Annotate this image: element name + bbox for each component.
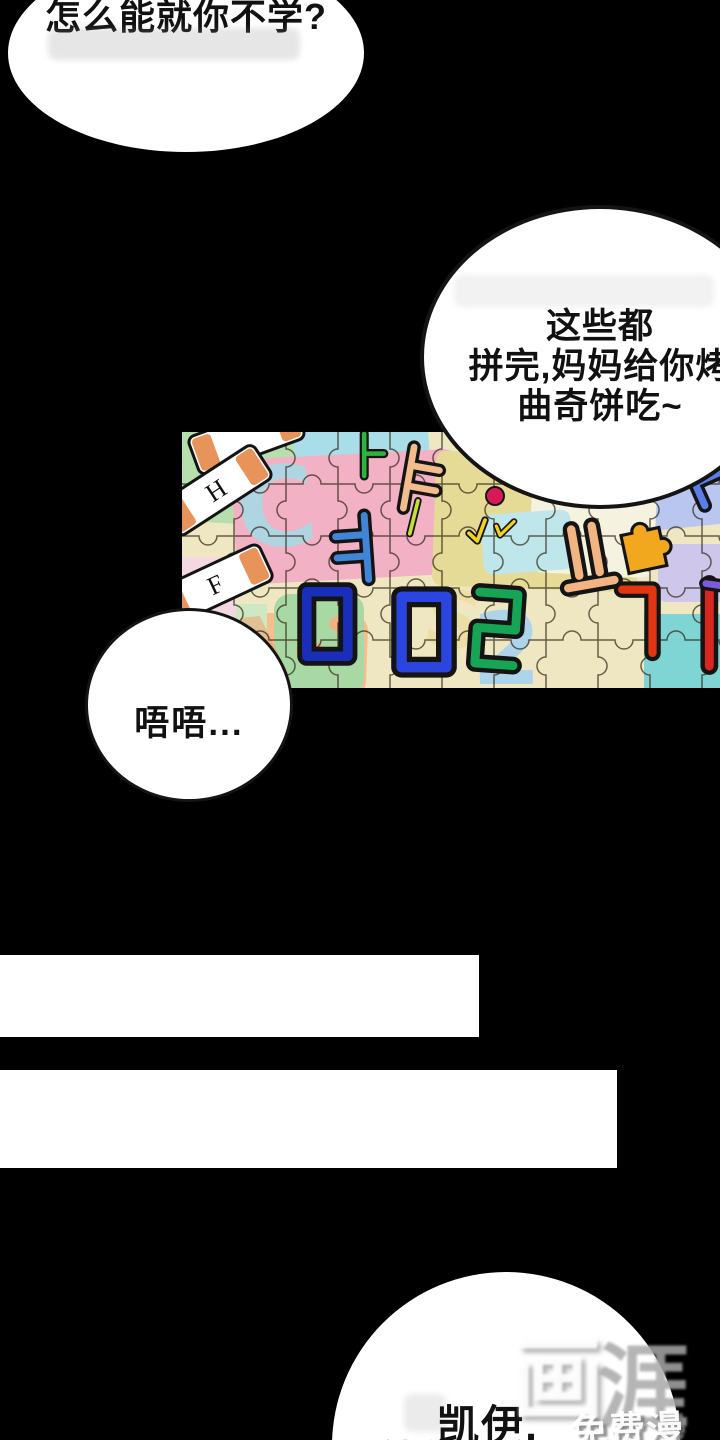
speech-text-bottom-line2: 就你是领 — [376, 1428, 552, 1440]
speech-line-2: 拼完,妈妈给你烤 — [424, 347, 720, 387]
speech-text-main: 这些都 拼完,妈妈给你烤 曲奇饼吃~ — [424, 307, 720, 427]
comic-page[interactable]: 怎么能就你不学? — [0, 0, 720, 1440]
speech-text-mumble: 唔唔... — [88, 695, 290, 746]
blank-panel-bar-1 — [0, 955, 479, 1037]
faded-ghost-text — [48, 28, 300, 60]
faded-ghost-text — [454, 275, 714, 307]
speech-bubble-top: 怎么能就你不学? — [8, 0, 364, 152]
blank-panel-bar-2 — [0, 1070, 617, 1168]
speech-line-1: 这些都 — [424, 307, 720, 347]
speech-bubble-bottom: 凯伊, 就你是领 — [332, 1272, 680, 1440]
mat-dot — [486, 487, 504, 505]
speech-bubble-mumble: 唔唔... — [85, 608, 293, 802]
speech-line-3: 曲奇饼吃~ — [424, 387, 720, 427]
